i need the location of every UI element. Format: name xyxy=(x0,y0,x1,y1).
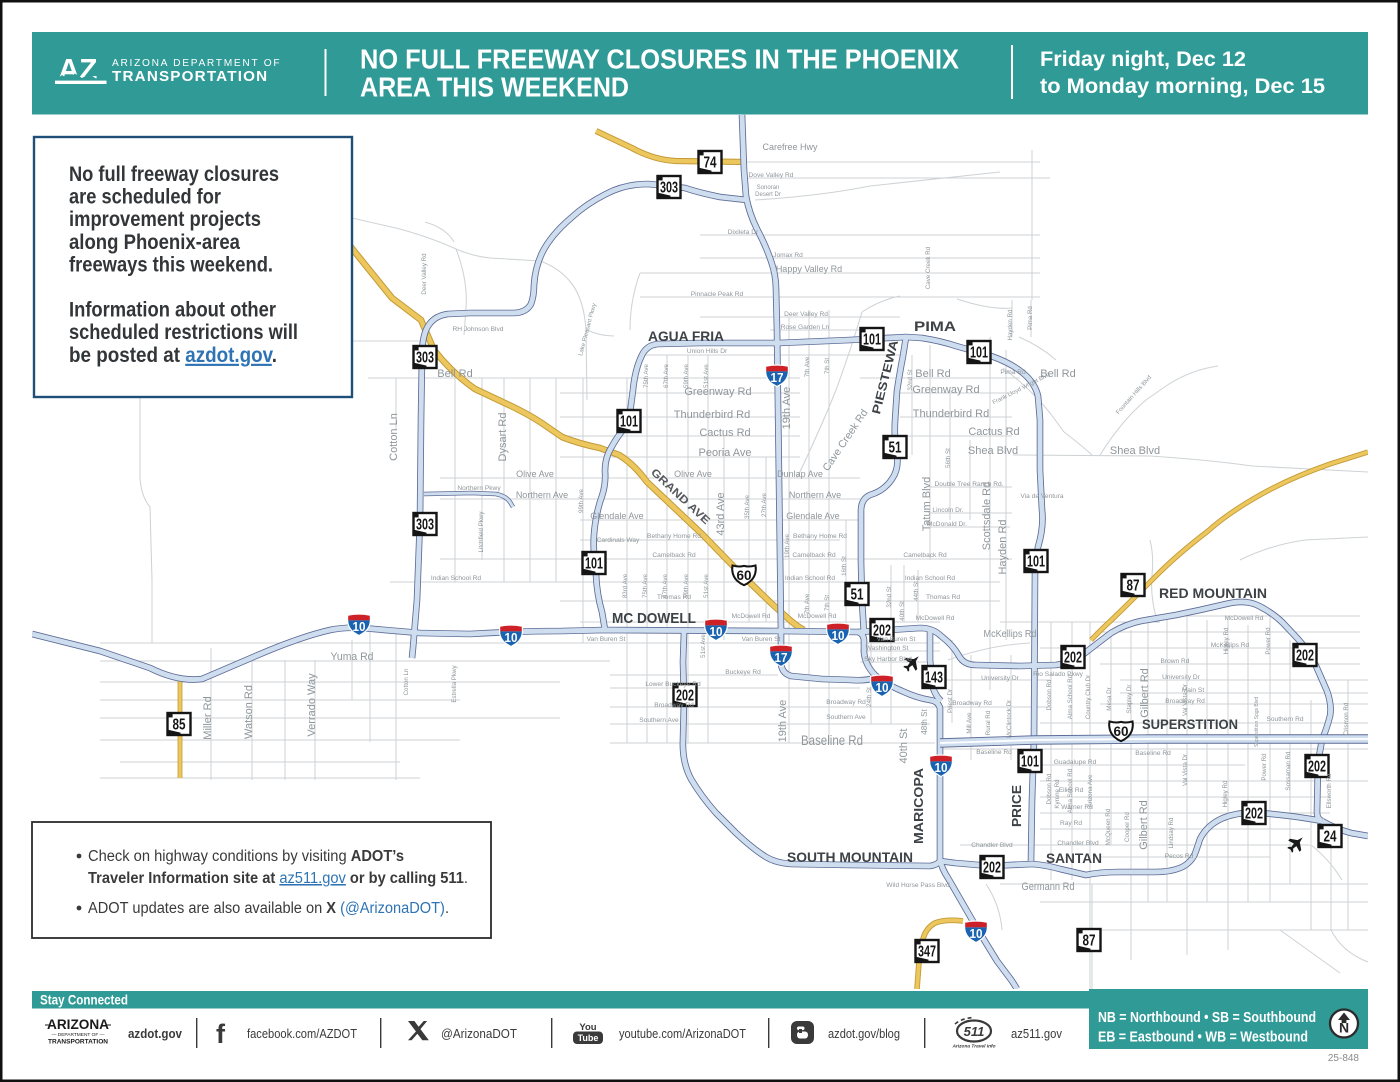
svg-text:Lincoln Dr.: Lincoln Dr. xyxy=(932,507,963,514)
svg-text:24th St: 24th St xyxy=(866,687,873,707)
svg-text:Peoria Ave: Peoria Ave xyxy=(698,447,751,459)
svg-text:EB = Eastbound • WB = Westboun: EB = Eastbound • WB = Westbound xyxy=(1098,1029,1308,1046)
svg-text:303: 303 xyxy=(660,180,678,197)
svg-text:75th Ave: 75th Ave xyxy=(643,363,650,388)
svg-text:PRICE: PRICE xyxy=(1010,785,1024,827)
svg-text:83rd Ave: 83rd Ave xyxy=(622,573,629,598)
svg-text:Mill Ave: Mill Ave xyxy=(966,712,973,734)
svg-text:Thomas Rd: Thomas Rd xyxy=(926,594,960,601)
svg-text:McKellips Rd: McKellips Rd xyxy=(984,628,1037,640)
svg-text:Indian School Rd: Indian School Rd xyxy=(905,575,956,582)
svg-text:Southern Rd: Southern Rd xyxy=(1266,716,1303,723)
svg-text:48th St: 48th St xyxy=(920,709,929,735)
svg-text:Broadway Rd: Broadway Rd xyxy=(826,699,866,706)
svg-text:51: 51 xyxy=(851,587,864,604)
svg-text:Broadway Rd: Broadway Rd xyxy=(952,700,992,707)
svg-text:Cotton Ln: Cotton Ln xyxy=(388,413,400,461)
svg-text:Dove Valley Rd: Dove Valley Rd xyxy=(749,172,794,179)
svg-text:60: 60 xyxy=(736,568,751,583)
svg-text:Olive Ave: Olive Ave xyxy=(516,469,554,479)
svg-text:SOUTH MOUNTAIN: SOUTH MOUNTAIN xyxy=(787,849,913,865)
svg-text:Ellsworth Rd: Ellsworth Rd xyxy=(1326,773,1333,808)
svg-text:McKellips Rd: McKellips Rd xyxy=(1211,642,1250,649)
svg-text:10: 10 xyxy=(505,631,518,645)
svg-text:Superstition Spgs Blvd: Superstition Spgs Blvd xyxy=(1254,697,1260,748)
svg-text:19th Ave: 19th Ave xyxy=(784,533,791,558)
svg-text:Shea Blvd: Shea Blvd xyxy=(1110,445,1160,457)
svg-text:202: 202 xyxy=(983,860,1001,877)
svg-text:Cotton Ln: Cotton Ln xyxy=(403,668,410,695)
svg-text:99th Ave: 99th Ave xyxy=(578,488,585,513)
svg-text:Chandler Blvd: Chandler Blvd xyxy=(1057,840,1099,847)
svg-text:azdot.gov/blog: azdot.gov/blog xyxy=(828,1026,900,1041)
svg-text:347: 347 xyxy=(918,944,936,961)
svg-text:16th St: 16th St xyxy=(841,556,848,576)
svg-text:10: 10 xyxy=(876,681,889,695)
svg-text:10: 10 xyxy=(935,761,948,775)
svg-text:Power Rd: Power Rd xyxy=(1265,627,1272,655)
svg-text:Pima Rd: Pima Rd xyxy=(1027,306,1034,330)
svg-text:Higley Rd: Higley Rd xyxy=(1222,780,1229,807)
svg-text:TRANSPORTATION: TRANSPORTATION xyxy=(48,1039,108,1046)
svg-text:10: 10 xyxy=(710,625,723,639)
svg-text:Greenway Rd: Greenway Rd xyxy=(684,386,751,398)
svg-text:scheduled restrictions will: scheduled restrictions will xyxy=(69,320,298,344)
svg-text:51st Ave: 51st Ave xyxy=(700,634,707,658)
svg-text:University Dr: University Dr xyxy=(981,675,1020,682)
svg-text:17: 17 xyxy=(775,651,788,665)
svg-text:az511.gov: az511.gov xyxy=(1011,1026,1063,1041)
svg-text:40th St: 40th St xyxy=(898,729,910,764)
svg-text:87: 87 xyxy=(1083,933,1096,950)
svg-text:McClintock Dr: McClintock Dr xyxy=(1006,700,1013,739)
svg-text:Camelback Rd: Camelback Rd xyxy=(652,552,696,559)
svg-text:Van Buren St: Van Buren St xyxy=(742,636,781,643)
svg-text:Lower Buckeye Rd: Lower Buckeye Rd xyxy=(645,681,701,688)
svg-text:Mesa Dr: Mesa Dr xyxy=(1106,687,1113,710)
svg-text:youtube.com/ArizonaDOT: youtube.com/ArizonaDOT xyxy=(619,1026,746,1041)
svg-text:Lindsay Rd: Lindsay Rd xyxy=(1168,817,1175,849)
svg-text:511: 511 xyxy=(964,1024,985,1039)
svg-text:Pecos Rd: Pecos Rd xyxy=(1165,853,1194,860)
svg-text:19th Ave: 19th Ave xyxy=(777,700,789,743)
svg-text:improvement projects: improvement projects xyxy=(69,207,261,231)
svg-text:27th Ave: 27th Ave xyxy=(761,492,768,517)
svg-text:Cardinals Way: Cardinals Way xyxy=(597,537,640,544)
svg-text:Country Club Dr: Country Club Dr xyxy=(1085,675,1092,719)
svg-text:Val Vista Dr: Val Vista Dr xyxy=(1182,684,1189,716)
svg-text:85: 85 xyxy=(173,717,186,734)
svg-text:McDowell Rd: McDowell Rd xyxy=(732,613,771,620)
svg-text:McQueen Rd: McQueen Rd xyxy=(1105,808,1112,845)
svg-text:— DEPARTMENT OF —: — DEPARTMENT OF — xyxy=(52,1032,105,1038)
svg-text:ARIZONA: ARIZONA xyxy=(47,1017,109,1032)
svg-text:7th Ave: 7th Ave xyxy=(804,356,811,377)
svg-text:Stay Connected: Stay Connected xyxy=(40,993,128,1008)
svg-text:Tube: Tube xyxy=(578,1033,599,1043)
svg-text:202: 202 xyxy=(1064,650,1082,667)
svg-text:MC DOWELL: MC DOWELL xyxy=(612,610,696,627)
svg-text:Cooper Rd: Cooper Rd xyxy=(1124,811,1131,841)
svg-text:Rose Garden Ln: Rose Garden Ln xyxy=(781,324,830,331)
svg-text:67th Ave: 67th Ave xyxy=(662,573,669,598)
svg-text:AREA THIS WEEKEND: AREA THIS WEEKEND xyxy=(360,72,629,103)
svg-text:17: 17 xyxy=(771,371,784,385)
svg-text:Bell Rd: Bell Rd xyxy=(915,368,950,380)
svg-text:Olive Ave: Olive Ave xyxy=(674,469,712,479)
svg-text:Bethany Home Rd: Bethany Home Rd xyxy=(793,533,847,540)
svg-text:Bell Rd: Bell Rd xyxy=(437,368,472,380)
svg-text:10: 10 xyxy=(970,927,983,941)
svg-text:Wild Horse Pass Blvd: Wild Horse Pass Blvd xyxy=(886,882,950,889)
svg-text:TRANSPORTATION: TRANSPORTATION xyxy=(112,68,268,85)
svg-text:Dixileta Dr: Dixileta Dr xyxy=(728,229,759,236)
svg-text:Alma School Rd: Alma School Rd xyxy=(1067,768,1074,813)
svg-text:Dysart Rd: Dysart Rd xyxy=(497,413,509,462)
svg-text:azdot.gov: azdot.gov xyxy=(128,1026,183,1041)
svg-text:Baseline Rd: Baseline Rd xyxy=(801,733,863,748)
svg-text:101: 101 xyxy=(863,332,881,349)
svg-text:along Phoenix-area: along Phoenix-area xyxy=(69,230,241,254)
svg-text:Stapley Dr: Stapley Dr xyxy=(1126,685,1133,714)
svg-text:75th Ave: 75th Ave xyxy=(642,573,649,598)
svg-text:MARICOPA: MARICOPA xyxy=(912,768,926,844)
svg-text:Arizona Ave: Arizona Ave xyxy=(1087,774,1094,807)
svg-text:Pima Rd: Pima Rd xyxy=(1000,369,1026,376)
svg-text:@ArizonaDOT: @ArizonaDOT xyxy=(441,1026,517,1041)
svg-text:10: 10 xyxy=(832,629,845,643)
svg-text:Hayden Rd: Hayden Rd xyxy=(997,519,1009,574)
svg-text:51st Ave: 51st Ave xyxy=(703,574,710,598)
svg-text:Glendale Ave: Glendale Ave xyxy=(590,511,643,521)
svg-text:Friday night, Dec 12: Friday night, Dec 12 xyxy=(1040,47,1246,71)
svg-text:Carefree Hwy: Carefree Hwy xyxy=(762,142,818,152)
svg-text:Cactus Rd: Cactus Rd xyxy=(968,426,1019,438)
svg-text:McDowell Rd: McDowell Rd xyxy=(1225,615,1264,622)
svg-text:are scheduled for: are scheduled for xyxy=(69,185,222,209)
svg-text:Baseline Rd: Baseline Rd xyxy=(976,749,1012,756)
svg-text:McDonald Dr.: McDonald Dr. xyxy=(927,521,967,528)
svg-text:Southern Ave: Southern Ave xyxy=(826,714,866,721)
svg-text:Traveler Information site at a: Traveler Information site at az511.gov o… xyxy=(88,870,468,887)
svg-text:Watson Rd: Watson Rd xyxy=(243,685,255,739)
svg-text:Brown Rd: Brown Rd xyxy=(1161,658,1190,665)
svg-text:Guadalupe Rd: Guadalupe Rd xyxy=(1054,759,1097,766)
svg-text:Deer Valley Rd: Deer Valley Rd xyxy=(784,311,828,318)
svg-text:59th Ave: 59th Ave xyxy=(683,573,690,598)
svg-text:7th St: 7th St xyxy=(824,595,831,611)
svg-text:59th Ave: 59th Ave xyxy=(683,363,690,388)
svg-text:202: 202 xyxy=(1245,806,1263,823)
svg-text:101: 101 xyxy=(620,414,638,431)
svg-text:Sky Harbor Blvd: Sky Harbor Blvd xyxy=(864,656,912,663)
svg-text:Baseline Rd: Baseline Rd xyxy=(1135,750,1171,757)
svg-text:Desert Dr: Desert Dr xyxy=(755,192,781,198)
svg-text:Estrella Pkwy: Estrella Pkwy xyxy=(451,665,458,703)
svg-text:101: 101 xyxy=(1021,754,1039,771)
svg-text:202: 202 xyxy=(1296,648,1314,665)
svg-text:Arizona Travel Info: Arizona Travel Info xyxy=(951,1044,995,1050)
svg-text:to Monday morning, Dec 15: to Monday morning, Dec 15 xyxy=(1040,74,1325,98)
svg-text:Gilbert Rd: Gilbert Rd xyxy=(1139,668,1151,718)
svg-text:Germann Rd: Germann Rd xyxy=(1022,881,1075,893)
svg-text:freeways this weekend.: freeways this weekend. xyxy=(69,252,273,276)
svg-text:Priest Dr: Priest Dr xyxy=(947,689,954,713)
svg-text:Information about other: Information about other xyxy=(69,298,277,322)
svg-text:Power Rd: Power Rd xyxy=(1261,753,1268,781)
svg-text:303: 303 xyxy=(416,517,434,534)
svg-text:Dobson Rd: Dobson Rd xyxy=(1046,773,1053,805)
svg-text:RED MOUNTAIN: RED MOUNTAIN xyxy=(1159,585,1267,601)
svg-text:51: 51 xyxy=(889,440,902,457)
svg-text:McDowell Rd: McDowell Rd xyxy=(916,615,955,622)
svg-text:AGUA FRIA: AGUA FRIA xyxy=(648,328,724,344)
svg-text:Van Buren St: Van Buren St xyxy=(587,636,626,643)
svg-text:facebook.com/AZDOT: facebook.com/AZDOT xyxy=(247,1026,357,1041)
svg-text:Scottsdale Rd: Scottsdale Rd xyxy=(981,482,993,550)
svg-text:You: You xyxy=(579,1022,596,1033)
svg-text:Chandler Blvd: Chandler Blvd xyxy=(971,842,1013,849)
svg-text:Verrado Way: Verrado Way xyxy=(306,673,318,737)
svg-text:Union Hills Dr: Union Hills Dr xyxy=(687,348,728,355)
svg-text:Happy Valley Rd: Happy Valley Rd xyxy=(776,264,842,274)
svg-text:Higley Rd: Higley Rd xyxy=(1223,627,1230,654)
svg-text:RH Johnson Blvd: RH Johnson Blvd xyxy=(453,326,504,333)
svg-text:Northern Ave: Northern Ave xyxy=(789,490,841,500)
svg-text:SANTAN: SANTAN xyxy=(1046,850,1102,866)
svg-text:32nd St: 32nd St xyxy=(886,586,893,608)
svg-text:7th St: 7th St xyxy=(824,358,831,374)
svg-text:Buckeye Rd: Buckeye Rd xyxy=(725,669,761,676)
svg-text:Sossaman Rd: Sossaman Rd xyxy=(1285,751,1292,790)
svg-text:19th Ave: 19th Ave xyxy=(781,387,793,430)
svg-text:f: f xyxy=(216,1019,226,1049)
svg-text:303: 303 xyxy=(416,350,434,367)
svg-text:10: 10 xyxy=(353,620,366,634)
svg-text:SUPERSTITION: SUPERSTITION xyxy=(1142,716,1238,732)
svg-text:Ray Rd: Ray Rd xyxy=(1060,820,1082,827)
svg-text:74: 74 xyxy=(704,155,717,172)
svg-text:PIMA: PIMA xyxy=(914,318,956,334)
svg-text:Pinnacle Peak Rd: Pinnacle Peak Rd xyxy=(691,291,744,298)
svg-text:35th Ave: 35th Ave xyxy=(744,494,751,519)
svg-text:25-848: 25-848 xyxy=(1328,1053,1360,1064)
svg-text:87: 87 xyxy=(1127,578,1140,595)
svg-text:Washington St: Washington St xyxy=(866,645,909,652)
svg-text:University Dr: University Dr xyxy=(1162,674,1201,681)
svg-text:Miller Rd: Miller Rd xyxy=(202,696,214,739)
svg-text:Hayden Rd: Hayden Rd xyxy=(1007,309,1014,341)
svg-text:Thunderbird Rd: Thunderbird Rd xyxy=(674,409,750,421)
svg-text:Litchfield Pkwy: Litchfield Pkwy xyxy=(478,511,485,553)
svg-text:40th St: 40th St xyxy=(899,601,906,621)
svg-text:NO FULL FREEWAY CLOSURES IN TH: NO FULL FREEWAY CLOSURES IN THE PHOENIX xyxy=(360,44,959,75)
svg-text:N: N xyxy=(1339,1020,1349,1036)
svg-text:Gilbert Rd: Gilbert Rd xyxy=(1138,800,1150,850)
svg-text:Via de Ventura: Via de Ventura xyxy=(1020,493,1063,500)
svg-text:No full freeway closures: No full freeway closures xyxy=(69,162,279,186)
svg-text:Val Vista Dr: Val Vista Dr xyxy=(1182,754,1189,786)
svg-text:Glendale Ave: Glendale Ave xyxy=(786,511,839,521)
svg-text:Dobson Rd: Dobson Rd xyxy=(1046,679,1053,711)
svg-text:Indian School Rd: Indian School Rd xyxy=(785,575,836,582)
svg-text:Crismon Rd: Crismon Rd xyxy=(1343,702,1350,735)
svg-text:Kyrene Rd: Kyrene Rd xyxy=(1054,779,1061,809)
svg-text:60: 60 xyxy=(1113,724,1128,739)
svg-text:143: 143 xyxy=(925,670,943,687)
svg-text:Sonoran: Sonoran xyxy=(757,185,780,191)
svg-text:Indian School Rd: Indian School Rd xyxy=(431,575,482,582)
svg-text:be posted at azdot.gov.: be posted at azdot.gov. xyxy=(69,343,277,367)
svg-text:Yuma Rd: Yuma Rd xyxy=(331,651,374,663)
svg-text:32nd St: 32nd St xyxy=(907,369,914,391)
svg-text:Check on highway conditions by: Check on highway conditions by visiting … xyxy=(88,848,404,865)
svg-text:Shea Blvd: Shea Blvd xyxy=(968,445,1018,457)
svg-text:Van Buren St: Van Buren St xyxy=(877,636,916,643)
svg-text:Thunderbird Rd: Thunderbird Rd xyxy=(913,408,989,420)
svg-text:101: 101 xyxy=(1027,554,1045,571)
svg-text:Broadway Rd: Broadway Rd xyxy=(654,702,694,709)
svg-text:Rio Salado Pkwy: Rio Salado Pkwy xyxy=(1033,671,1084,678)
svg-text:202: 202 xyxy=(1308,759,1326,776)
svg-text:44th St: 44th St xyxy=(913,581,920,601)
svg-text:Cave Creek Rd: Cave Creek Rd xyxy=(925,246,932,289)
svg-text:101: 101 xyxy=(970,345,988,362)
svg-text:ADOT updates are also availabl: ADOT updates are also available on X (@A… xyxy=(88,900,449,917)
svg-text:51st Ave: 51st Ave xyxy=(703,364,710,388)
svg-text:Northern Pkwy: Northern Pkwy xyxy=(457,485,501,492)
svg-text:Cactus Rd: Cactus Rd xyxy=(699,427,750,439)
svg-text:Alma School Rd: Alma School Rd xyxy=(1067,674,1074,719)
svg-text:Camelback Rd: Camelback Rd xyxy=(903,552,947,559)
svg-text:Bethany Home Rd: Bethany Home Rd xyxy=(647,533,701,540)
svg-text:Deer Valley Rd: Deer Valley Rd xyxy=(421,253,428,295)
svg-text:43rd Ave: 43rd Ave xyxy=(715,492,727,535)
svg-text:NB = Northbound • SB = Southbo: NB = Northbound • SB = Southbound xyxy=(1098,1009,1316,1026)
svg-text:24: 24 xyxy=(1324,829,1337,846)
svg-text:Jomax Rd: Jomax Rd xyxy=(773,252,803,259)
svg-text:7th Ave: 7th Ave xyxy=(804,593,811,614)
svg-text:Dunlap Ave: Dunlap Ave xyxy=(777,469,823,479)
svg-text:Camelback Rd: Camelback Rd xyxy=(792,552,836,559)
svg-text:Southern Ave: Southern Ave xyxy=(639,717,679,724)
svg-text:Rural Rd: Rural Rd xyxy=(985,710,992,735)
svg-text:Northern Ave: Northern Ave xyxy=(516,490,568,500)
svg-text:Greenway Rd: Greenway Rd xyxy=(912,384,979,396)
svg-text:101: 101 xyxy=(585,556,603,573)
svg-text:56th St: 56th St xyxy=(945,448,952,468)
svg-text:67th Ave: 67th Ave xyxy=(663,363,670,388)
svg-text:Tatum Blvd: Tatum Blvd xyxy=(921,477,933,531)
svg-text:Double Tree Ranch Rd.: Double Tree Ranch Rd. xyxy=(935,481,1004,488)
